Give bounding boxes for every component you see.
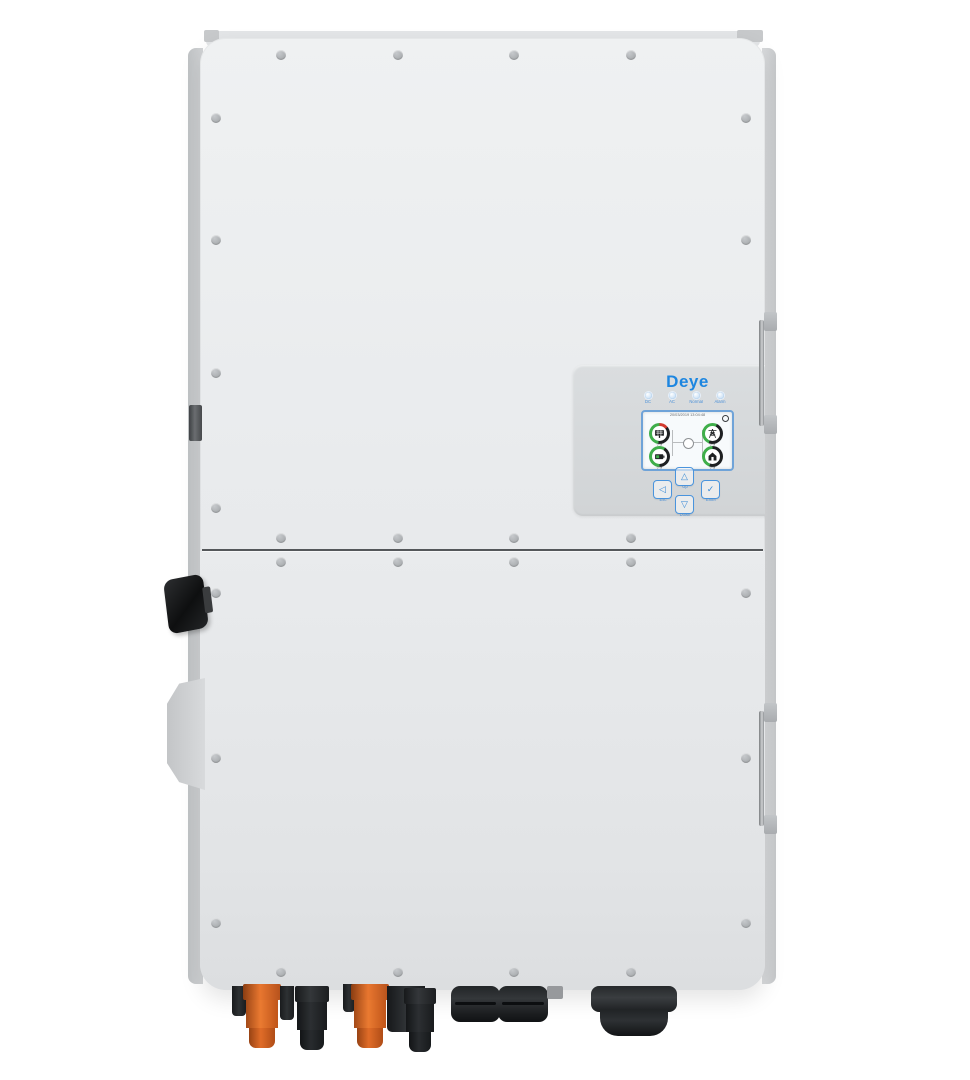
- ac-cable-gland-top: [591, 986, 677, 1012]
- right-handle-upper: [756, 312, 777, 434]
- mc4-cap: [351, 984, 389, 1000]
- load-gauge-value: 0 W: [706, 466, 719, 469]
- screw: [741, 588, 751, 598]
- mc4-body: [297, 1002, 326, 1030]
- inverter-node-icon: [683, 438, 694, 449]
- screw: [276, 533, 286, 543]
- front-cover: Deye DC AC Normal Alarm: [200, 38, 765, 990]
- battery-gauge: 0 W: [649, 446, 670, 467]
- dc-isolator-switch[interactable]: [163, 573, 209, 634]
- down-button-label: Down: [675, 513, 695, 517]
- dc-led-icon: [645, 392, 652, 399]
- mc4-cap: [243, 984, 281, 1000]
- screw: [626, 50, 636, 60]
- handle-tab: [764, 815, 777, 834]
- led-normal: Normal: [685, 392, 707, 407]
- led-ac: AC: [661, 392, 683, 407]
- mc4-tip: [409, 1032, 431, 1052]
- mc4-body: [406, 1004, 434, 1032]
- screw: [626, 557, 636, 567]
- screw: [393, 557, 403, 567]
- mc4-tip: [300, 1030, 323, 1050]
- screw: [276, 967, 286, 977]
- load-gauge: 0 W: [702, 446, 723, 467]
- control-panel: Deye DC AC Normal Alarm: [573, 365, 765, 516]
- screw: [626, 533, 636, 543]
- ac-led-icon: [669, 392, 676, 399]
- handle-bar: [759, 320, 764, 426]
- led-label: AC: [665, 400, 678, 404]
- enter-button[interactable]: ✓: [701, 480, 720, 499]
- screw: [211, 113, 221, 123]
- led-dc: DC: [637, 392, 659, 407]
- handle-bar: [759, 711, 764, 826]
- mc4-cap: [295, 986, 329, 1002]
- lower-cover: [200, 551, 765, 990]
- grid-gauge: 0 W: [702, 423, 723, 444]
- led-label: Normal: [689, 400, 702, 404]
- battery-icon: [654, 451, 665, 462]
- mc4-connector-orange-1: [243, 984, 281, 1048]
- screw: [393, 533, 403, 543]
- esc-button-label: Esc: [653, 498, 673, 502]
- screw: [211, 235, 221, 245]
- screen-datetime: 20/03/2019 13:04:48: [663, 413, 712, 417]
- lcd-screen: 20/03/2019 13:04:48 0 W: [641, 410, 734, 471]
- screw: [509, 967, 519, 977]
- brand-logo: Deye: [573, 372, 765, 392]
- screw: [211, 918, 221, 928]
- screw: [509, 557, 519, 567]
- normal-led-icon: [693, 392, 700, 399]
- screw: [741, 113, 751, 123]
- inverter-product-photo: Deye DC AC Normal Alarm: [0, 0, 970, 1080]
- handle-tab: [764, 312, 777, 331]
- led-alarm: Alarm: [709, 392, 731, 407]
- left-hinge-block: [189, 405, 202, 441]
- cover-seam-highlight: [202, 551, 763, 552]
- mc4-cap: [404, 988, 436, 1004]
- mc4-body: [246, 1000, 279, 1028]
- screw: [211, 503, 221, 513]
- mc4-body: [354, 1000, 387, 1028]
- enter-button-label: Enter: [701, 498, 721, 502]
- screw: [741, 235, 751, 245]
- screw: [509, 533, 519, 543]
- led-label: DC: [641, 400, 654, 404]
- battery-gauge-value: 0 W: [653, 466, 666, 469]
- screw: [626, 967, 636, 977]
- cable-gland-1: [451, 986, 500, 1022]
- up-button[interactable]: △: [675, 467, 694, 486]
- settings-gear-icon[interactable]: [722, 415, 729, 422]
- screw: [393, 967, 403, 977]
- pv-gauge: 0 W: [649, 423, 670, 444]
- flow-line: [672, 430, 673, 456]
- ac-cable-gland-bottom: [600, 1010, 668, 1036]
- screw: [509, 50, 519, 60]
- mc4-tip: [357, 1028, 383, 1048]
- handle-tab: [764, 415, 777, 434]
- screw: [276, 557, 286, 567]
- mc4-tip: [249, 1028, 275, 1048]
- home-load-icon: [707, 451, 718, 462]
- left-side-bracket: [167, 678, 205, 790]
- screw: [211, 753, 221, 763]
- handle-tab: [764, 703, 777, 722]
- right-handle-lower: [756, 703, 777, 834]
- gland-fitting: [547, 986, 563, 999]
- mc4-connector-orange-2: [351, 984, 389, 1048]
- mc4-connector-black-1: [295, 986, 329, 1050]
- screw: [393, 50, 403, 60]
- pv-cable-stub: [280, 986, 294, 1020]
- up-button-label: Up: [675, 485, 695, 489]
- screw: [741, 753, 751, 763]
- mc4-connector-black-2: [404, 988, 436, 1052]
- alarm-led-icon: [717, 392, 724, 399]
- screw: [211, 588, 221, 598]
- grid-tower-icon: [707, 428, 718, 439]
- esc-button[interactable]: ◁: [653, 480, 672, 499]
- screw: [276, 50, 286, 60]
- solar-panel-icon: [654, 428, 665, 439]
- screw: [741, 918, 751, 928]
- down-button[interactable]: ▽: [675, 495, 694, 514]
- cable-gland-2: [498, 986, 548, 1022]
- led-label: Alarm: [713, 400, 726, 404]
- screw: [211, 368, 221, 378]
